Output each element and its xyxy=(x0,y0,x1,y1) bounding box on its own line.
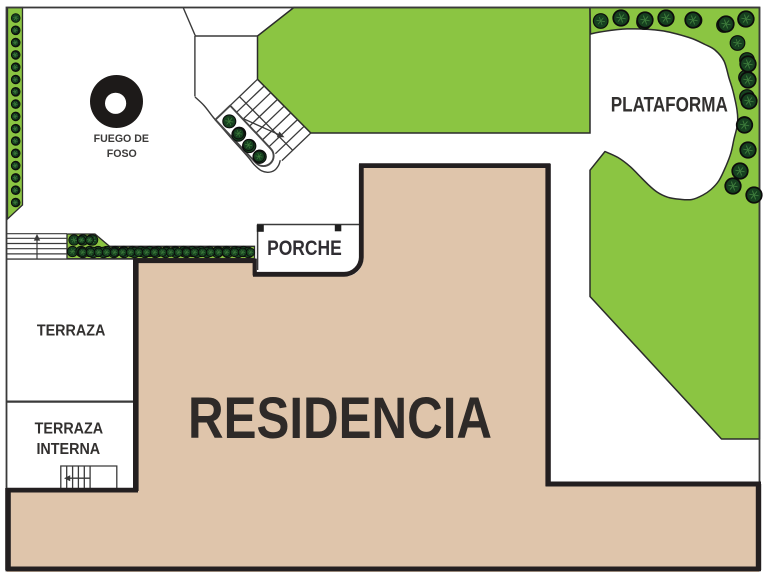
svg-text:PORCHE: PORCHE xyxy=(267,238,342,261)
svg-text:RESIDENCIA: RESIDENCIA xyxy=(188,386,492,451)
svg-text:FOSO: FOSO xyxy=(107,148,137,160)
svg-text:TERRAZA: TERRAZA xyxy=(37,322,106,340)
svg-text:PLATAFORMA: PLATAFORMA xyxy=(611,93,728,117)
svg-text:FUEGO DE: FUEGO DE xyxy=(94,133,149,145)
svg-text:INTERNA: INTERNA xyxy=(36,441,100,459)
svg-text:TERRAZA: TERRAZA xyxy=(35,420,104,438)
